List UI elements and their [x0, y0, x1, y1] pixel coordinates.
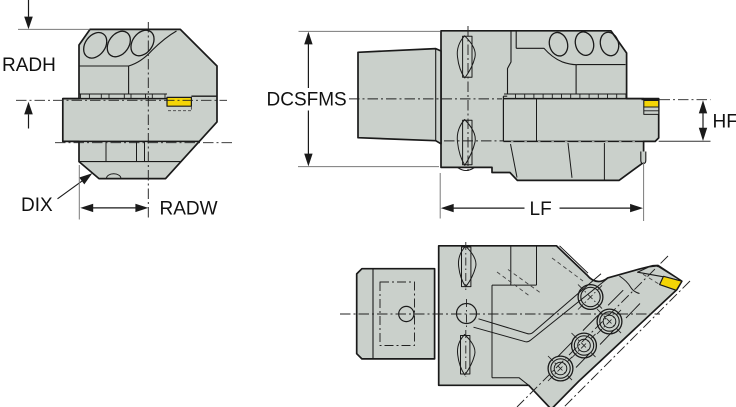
svg-text:RADH: RADH: [2, 55, 56, 76]
svg-text:HF: HF: [713, 112, 736, 133]
svg-text:LF: LF: [530, 199, 552, 220]
svg-text:DIX: DIX: [21, 195, 53, 216]
svg-text:RADW: RADW: [160, 199, 218, 220]
svg-text:DCSFMS: DCSFMS: [267, 89, 347, 110]
